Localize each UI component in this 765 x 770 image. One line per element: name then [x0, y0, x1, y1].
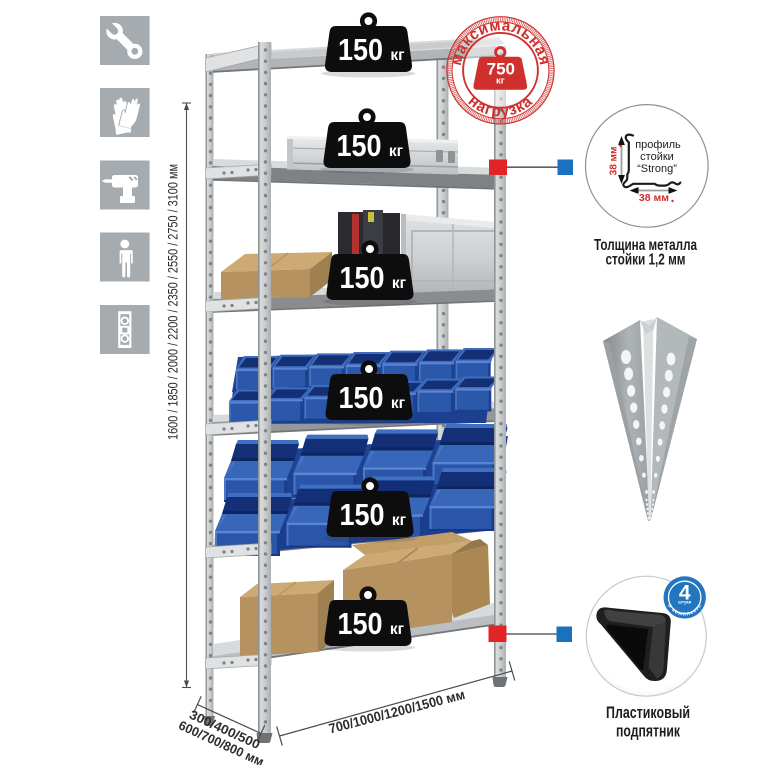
- svg-text:“Strong”: “Strong”: [637, 163, 677, 175]
- svg-text:кг: кг: [496, 75, 505, 86]
- svg-text:подпятник: подпятник: [616, 723, 681, 741]
- svg-text:Пластиковый: Пластиковый: [606, 704, 690, 722]
- svg-text:38 мм: 38 мм: [609, 147, 620, 176]
- svg-text:профиль: профиль: [635, 139, 681, 151]
- svg-text:38 мм: 38 мм: [639, 192, 669, 204]
- svg-text:штуки: штуки: [678, 600, 692, 605]
- svg-text:стойки 1,2 мм: стойки 1,2 мм: [606, 252, 686, 269]
- svg-text:стойки: стойки: [640, 151, 674, 163]
- svg-text:1600 / 1850 / 2000 / 2200 / 23: 1600 / 1850 / 2000 / 2200 / 2350 / 2550 …: [165, 164, 181, 440]
